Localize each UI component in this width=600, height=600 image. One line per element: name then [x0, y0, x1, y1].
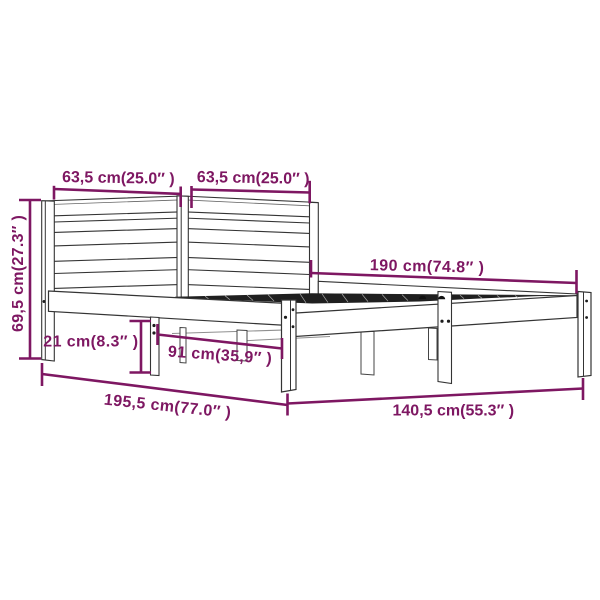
svg-text:140,5 cm(55.3″ ): 140,5 cm(55.3″ ) [393, 403, 515, 420]
svg-text:69,5 cm(27.3″ ): 69,5 cm(27.3″ ) [10, 215, 27, 332]
svg-text:21 cm(8.3″ ): 21 cm(8.3″ ) [43, 334, 138, 351]
svg-text:63,5 cm(25.0″ ): 63,5 cm(25.0″ ) [62, 169, 175, 188]
svg-text:190 cm(74.8″ ): 190 cm(74.8″ ) [370, 257, 485, 277]
svg-text:63,5 cm(25.0″ ): 63,5 cm(25.0″ ) [197, 169, 310, 188]
